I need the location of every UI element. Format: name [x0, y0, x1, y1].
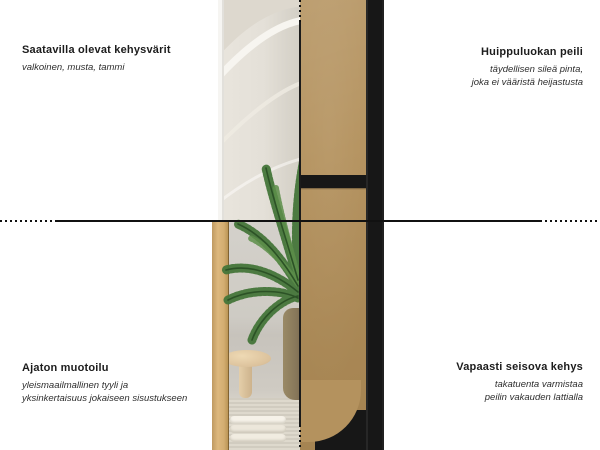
annotation-premium-mirror: Huippuluokan peili täydellisen sileä pin…: [472, 46, 583, 90]
mirror-white-frame-edge: [218, 0, 224, 220]
annotation-title: Ajaton muotoilu: [22, 362, 187, 374]
photo-mirror-front-oak-frame: [212, 220, 300, 450]
annotation-subtitle-line: joka ei vääristä heijastusta: [472, 76, 583, 89]
annotation-frame-colors: Saatavilla olevat kehysvärit valkoinen, …: [22, 44, 171, 74]
annotation-title: Vapaasti seisova kehys: [456, 361, 583, 373]
photo-mirror-front-white-frame: [218, 0, 300, 220]
photo-mirror-back-panel: [300, 0, 384, 450]
stool: [223, 350, 271, 367]
rolled-towel: [230, 434, 286, 442]
frame-curved-corner: [315, 410, 370, 450]
annotation-freestanding-frame: Vapaasti seisova kehys takatuenta varmis…: [456, 361, 583, 405]
annotation-title: Saatavilla olevat kehysvärit: [22, 44, 171, 56]
annotation-subtitle: valkoinen, musta, tammi: [22, 61, 171, 74]
divider-horizontal-dotted-left: [0, 220, 57, 222]
annotation-title: Huippuluokan peili: [472, 46, 583, 58]
rolled-towel: [230, 416, 286, 424]
plant-pot: [283, 308, 300, 400]
divider-vertical-seam: [299, 22, 301, 426]
annotation-subtitle-line: yleismaailmallinen tyyli ja: [22, 379, 187, 392]
wall-arch-illustration: [218, 0, 300, 220]
mirror-feature-infographic: Saatavilla olevat kehysvärit valkoinen, …: [0, 0, 600, 450]
stool-leg: [239, 364, 252, 398]
divider-horizontal-dotted-right: [540, 220, 597, 222]
annotation-subtitle-line: takatuenta varmistaa: [456, 378, 583, 391]
divider-vertical-dotted-top: [299, 0, 301, 23]
annotation-subtitle-line: peilin vakauden lattialla: [456, 391, 583, 404]
frame-side-bar: [366, 0, 384, 450]
rolled-towel: [230, 425, 286, 433]
annotation-timeless-design: Ajaton muotoilu yleismaailmallinen tyyli…: [22, 362, 187, 406]
divider-vertical-dotted-bottom: [299, 425, 301, 450]
annotation-subtitle-line: täydellisen sileä pinta,: [472, 63, 583, 76]
divider-horizontal-solid: [57, 220, 540, 222]
annotation-subtitle-line: yksinkertaisuus jokaiseen sisustukseen: [22, 392, 187, 405]
mirror-oak-frame-edge: [212, 220, 229, 450]
